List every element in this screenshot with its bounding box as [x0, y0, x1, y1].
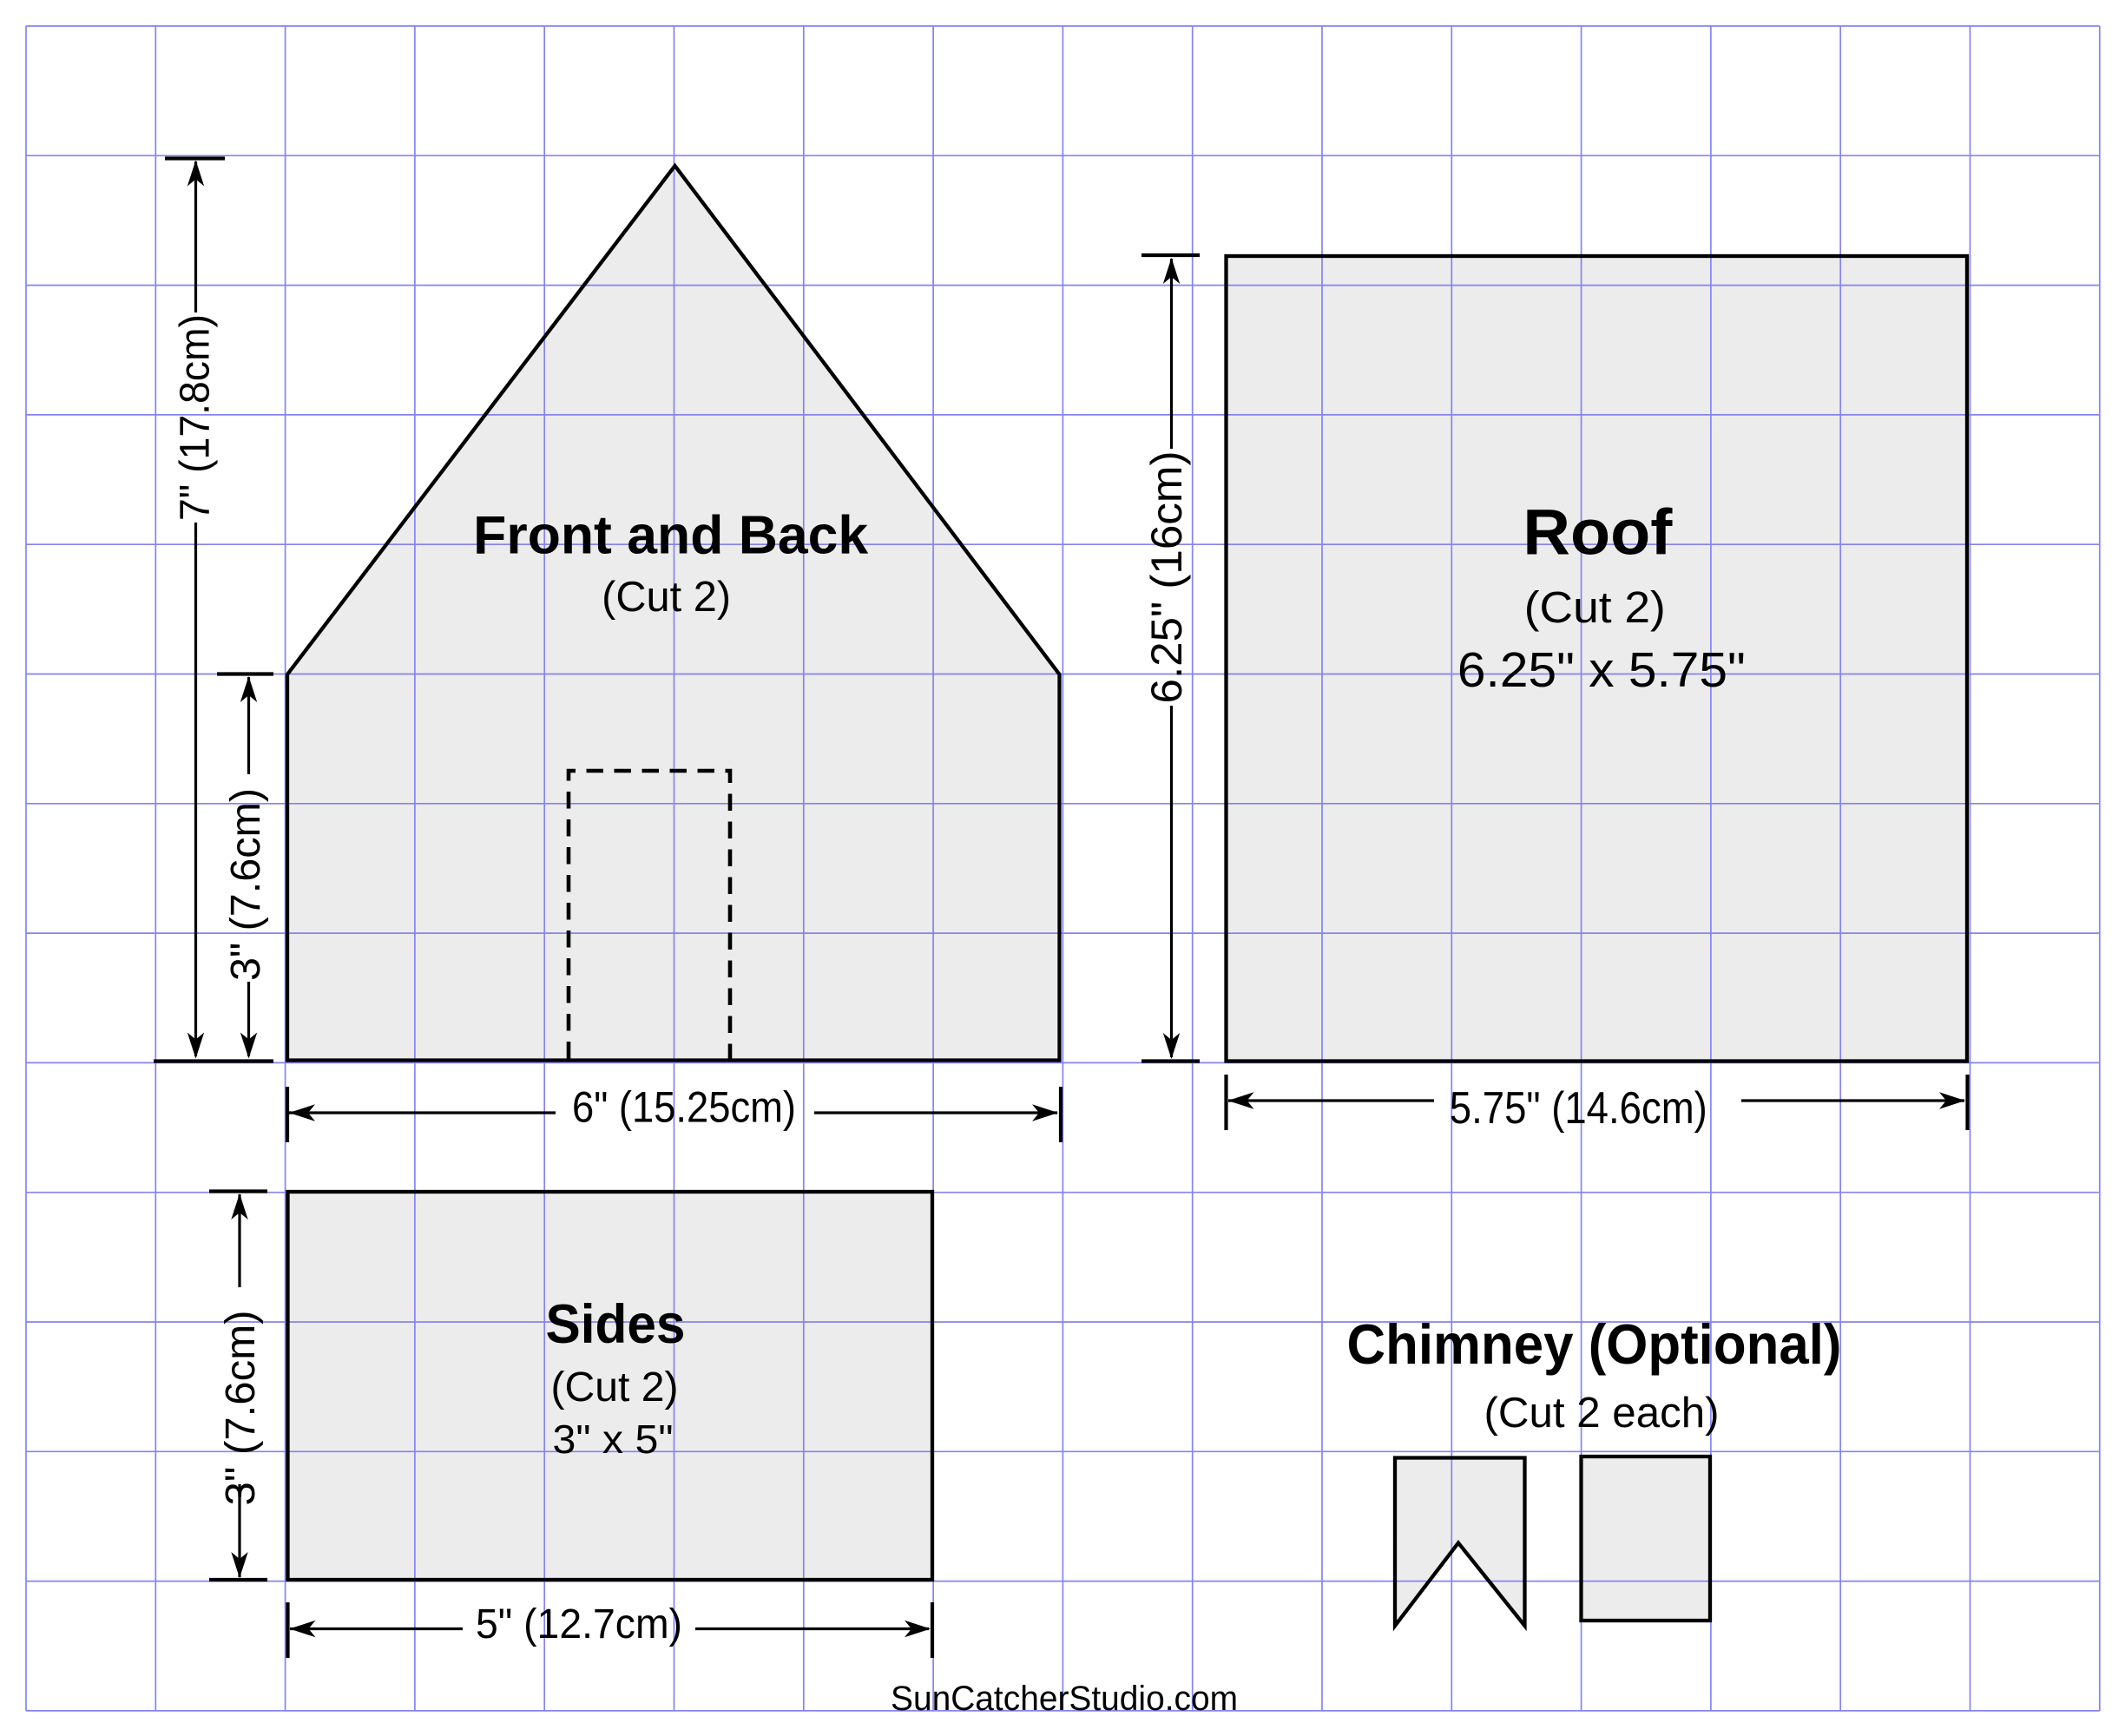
svg-text:5" (12.7cm): 5" (12.7cm): [476, 1601, 682, 1647]
svg-text:Front and Back: Front and Back: [473, 506, 869, 566]
svg-text:(Cut 2): (Cut 2): [602, 574, 731, 621]
svg-text:6.25" x 5.75": 6.25" x 5.75": [1457, 642, 1746, 698]
svg-text:7" (17.8cm): 7" (17.8cm): [173, 314, 219, 521]
svg-text:(Cut 2): (Cut 2): [1524, 582, 1666, 632]
svg-text:3" (7.6cm): 3" (7.6cm): [223, 788, 269, 981]
svg-text:3" (7.6cm): 3" (7.6cm): [218, 1311, 264, 1506]
svg-text:Sides: Sides: [546, 1294, 686, 1355]
svg-text:SunCatcherStudio.com: SunCatcherStudio.com: [891, 1680, 1238, 1718]
svg-text:(Cut 2): (Cut 2): [551, 1364, 679, 1410]
svg-text:Chimney (Optional): Chimney (Optional): [1347, 1312, 1842, 1376]
svg-text:Roof: Roof: [1523, 496, 1672, 569]
svg-text:5.75" (14.6cm): 5.75" (14.6cm): [1450, 1083, 1707, 1134]
svg-text:6.25" (16cm): 6.25" (16cm): [1142, 451, 1191, 704]
svg-text:3" x 5": 3" x 5": [553, 1417, 674, 1462]
svg-text:(Cut 2 each): (Cut 2 each): [1484, 1390, 1720, 1437]
svg-text:6" (15.25cm): 6" (15.25cm): [572, 1083, 796, 1132]
